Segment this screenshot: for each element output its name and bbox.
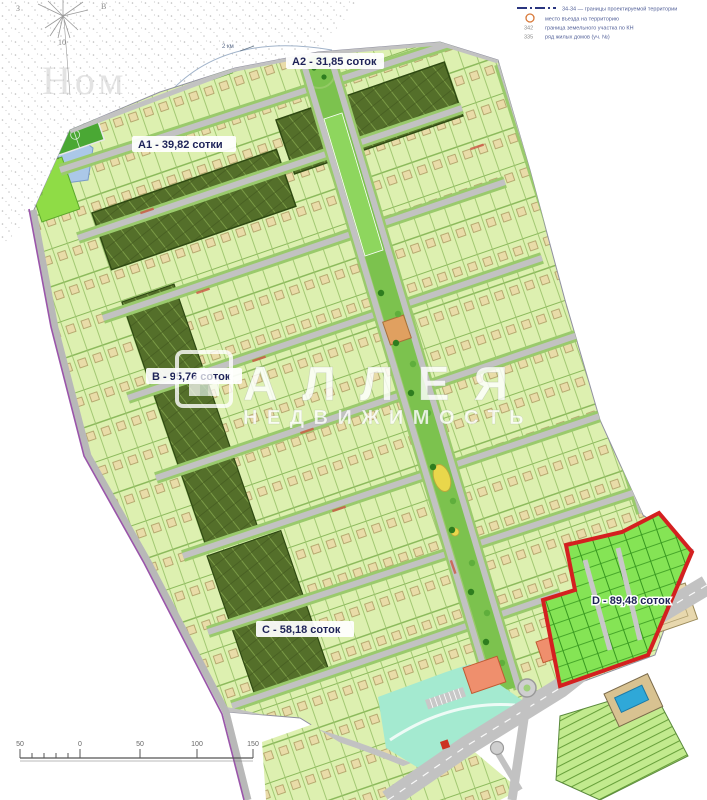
- area-label-c: C - 58,18 соток: [256, 621, 354, 637]
- scale-label-50L: 50: [16, 741, 24, 748]
- legend-row1-text: 34-34 — границы проектируемой территории: [562, 6, 677, 13]
- area-label-c-text: C - 58,18 соток: [262, 624, 341, 636]
- legend-row3-number: 342: [524, 26, 533, 32]
- roundabout-small: [491, 742, 504, 755]
- distance-note: 2 км: [222, 44, 234, 50]
- scale-label-50R: 50: [136, 741, 144, 748]
- area-label-a1-text: A1 - 39,82 сотки: [138, 139, 223, 151]
- legend-row4-text: ряд жилых домов (уч. №): [545, 35, 610, 41]
- brand-watermark-title: АЛЛЕЯ: [243, 358, 532, 411]
- area-label-a2: A2 - 31,85 соток: [286, 53, 384, 69]
- compass-east-label: В: [101, 2, 106, 11]
- corner-watermark: Ном: [42, 58, 127, 103]
- brand-watermark-subtitle: НЕДВИЖИМОСТЬ: [243, 407, 533, 429]
- scale-label-150: 150: [247, 741, 259, 748]
- site-plan-canvas: Ном З В 10 2 км: [0, 0, 707, 800]
- scale-label-100: 100: [191, 741, 203, 748]
- area-label-a2-text: A2 - 31,85 соток: [292, 56, 377, 68]
- legend-row4-number: 335: [524, 35, 533, 41]
- area-label-a1: A1 - 39,82 сотки: [132, 136, 236, 152]
- legend-row2-text: место въезда на территорию: [545, 17, 619, 23]
- scale-label-0: 0: [78, 741, 82, 748]
- area-label-d-text: D - 89,48 соток: [592, 595, 671, 607]
- masterplan-map: Ном З В 10 2 км: [0, 0, 707, 800]
- compass-west-label: З: [16, 4, 20, 13]
- compass-number: 10: [58, 38, 66, 47]
- legend-row3-text: граница земельного участка по КН: [545, 26, 634, 32]
- roundabout-island: [524, 685, 531, 692]
